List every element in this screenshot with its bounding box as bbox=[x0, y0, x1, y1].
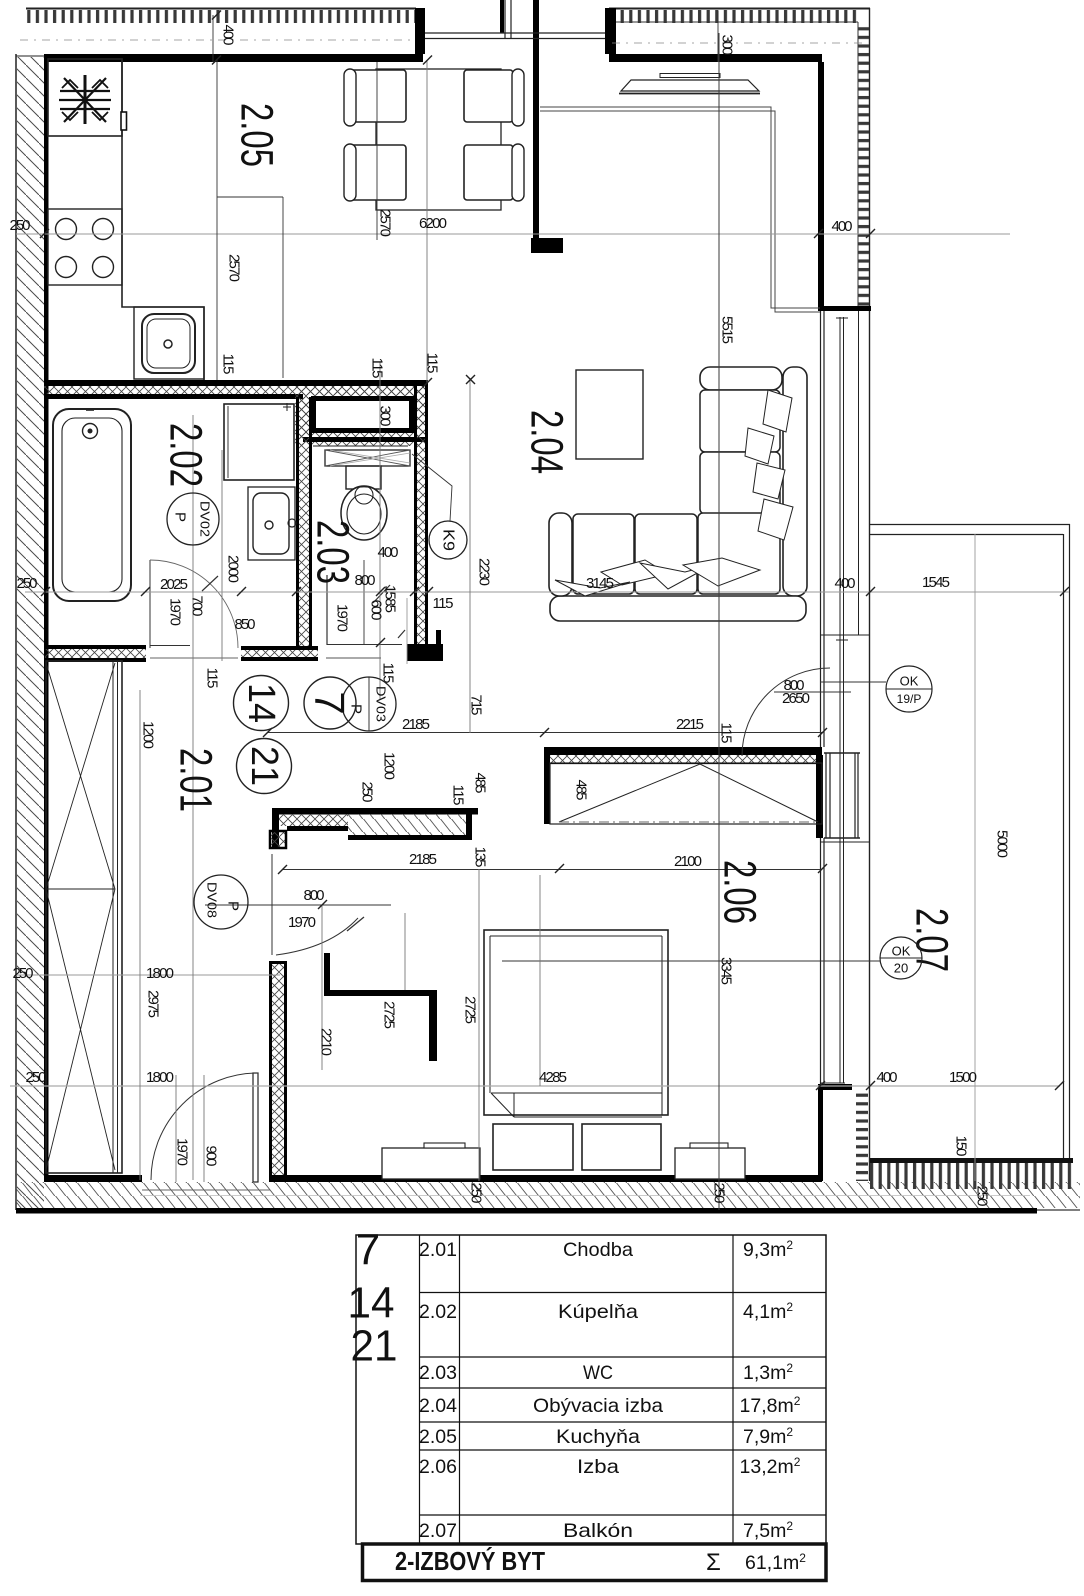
svg-text:115: 115 bbox=[220, 354, 237, 375]
svg-text:OK: OK bbox=[900, 674, 919, 689]
svg-text:21: 21 bbox=[351, 1322, 398, 1371]
svg-text:485: 485 bbox=[573, 780, 590, 801]
svg-text:2725: 2725 bbox=[462, 996, 479, 1024]
svg-text:4285: 4285 bbox=[539, 1069, 567, 1086]
svg-text:2.02: 2.02 bbox=[161, 423, 212, 487]
svg-text:4,1m2: 4,1m2 bbox=[743, 1300, 793, 1323]
svg-text:2-IZBOVÝ BYT: 2-IZBOVÝ BYT bbox=[395, 1546, 545, 1576]
svg-text:1970: 1970 bbox=[288, 914, 316, 931]
svg-text:2185: 2185 bbox=[409, 851, 437, 868]
svg-text:115: 115 bbox=[450, 785, 467, 806]
svg-text:13,2m2: 13,2m2 bbox=[740, 1455, 801, 1478]
svg-text:WC: WC bbox=[583, 1362, 613, 1384]
svg-text:2025: 2025 bbox=[160, 576, 188, 593]
svg-text:2570: 2570 bbox=[226, 254, 243, 282]
svg-text:2.04: 2.04 bbox=[522, 410, 573, 474]
svg-text:2230: 2230 bbox=[476, 558, 493, 586]
svg-text:1800: 1800 bbox=[146, 1069, 174, 1086]
svg-text:Kuchyňa: Kuchyňa bbox=[556, 1426, 640, 1448]
svg-text:3145: 3145 bbox=[586, 575, 614, 592]
svg-text:2.04: 2.04 bbox=[419, 1395, 457, 1417]
svg-text:1970: 1970 bbox=[167, 598, 184, 626]
svg-text:Obývacia izba: Obývacia izba bbox=[533, 1395, 663, 1417]
svg-text:2100: 2100 bbox=[674, 853, 702, 870]
svg-text:400: 400 bbox=[877, 1069, 898, 1086]
svg-text:OK: OK bbox=[892, 944, 911, 959]
svg-text:P: P bbox=[225, 901, 242, 911]
svg-text:7: 7 bbox=[356, 1226, 380, 1275]
svg-text:2.01: 2.01 bbox=[419, 1239, 457, 1261]
svg-text:250: 250 bbox=[974, 1186, 991, 1207]
svg-text:250: 250 bbox=[10, 217, 31, 234]
svg-text:1200: 1200 bbox=[381, 752, 398, 780]
svg-text:800: 800 bbox=[355, 572, 376, 589]
svg-text:2000: 2000 bbox=[225, 555, 242, 583]
svg-text:7,9m2: 7,9m2 bbox=[743, 1425, 793, 1448]
svg-text:P: P bbox=[172, 512, 189, 522]
svg-text:5515: 5515 bbox=[719, 316, 736, 344]
svg-text:115: 115 bbox=[424, 353, 441, 374]
svg-text:61,1m2: 61,1m2 bbox=[745, 1551, 806, 1574]
svg-text:600: 600 bbox=[368, 600, 385, 621]
svg-text:3345: 3345 bbox=[718, 957, 735, 985]
svg-text:250: 250 bbox=[17, 575, 38, 592]
svg-text:800: 800 bbox=[304, 887, 325, 904]
svg-text:1970: 1970 bbox=[334, 604, 351, 632]
svg-text:2.03: 2.03 bbox=[419, 1362, 457, 1384]
svg-text:2.06: 2.06 bbox=[715, 860, 766, 924]
svg-text:2210: 2210 bbox=[318, 1028, 335, 1056]
svg-text:1500: 1500 bbox=[949, 1069, 977, 1086]
svg-text:K9: K9 bbox=[440, 529, 457, 551]
svg-text:400: 400 bbox=[835, 575, 856, 592]
svg-text:7: 7 bbox=[307, 691, 354, 714]
svg-text:850: 850 bbox=[235, 616, 256, 633]
svg-text:2185: 2185 bbox=[402, 716, 430, 733]
svg-text:9,3m2: 9,3m2 bbox=[743, 1238, 793, 1261]
svg-text:Balkón: Balkón bbox=[563, 1520, 633, 1542]
svg-text:5000: 5000 bbox=[994, 830, 1011, 858]
svg-text:900: 900 bbox=[203, 1146, 220, 1167]
svg-text:DV02: DV02 bbox=[198, 501, 213, 537]
svg-text:Kúpelňa: Kúpelňa bbox=[558, 1301, 638, 1323]
svg-text:485: 485 bbox=[472, 773, 489, 794]
svg-text:1800: 1800 bbox=[146, 965, 174, 982]
svg-text:250: 250 bbox=[359, 782, 376, 803]
svg-text:250: 250 bbox=[711, 1183, 728, 1204]
svg-text:150: 150 bbox=[953, 1136, 970, 1157]
svg-text:DV08: DV08 bbox=[205, 882, 220, 918]
svg-text:2.03: 2.03 bbox=[308, 520, 359, 584]
svg-text:300: 300 bbox=[719, 35, 736, 56]
svg-text:2.01: 2.01 bbox=[171, 748, 222, 812]
svg-text:250: 250 bbox=[13, 965, 34, 982]
svg-text:20: 20 bbox=[894, 961, 908, 976]
svg-text:2650: 2650 bbox=[782, 690, 810, 707]
svg-text:2.06: 2.06 bbox=[419, 1456, 457, 1478]
svg-text:Izba: Izba bbox=[577, 1456, 619, 1478]
svg-text:1200: 1200 bbox=[140, 721, 157, 749]
svg-text:Σ: Σ bbox=[706, 1549, 721, 1576]
svg-text:7,5m2: 7,5m2 bbox=[743, 1519, 793, 1542]
svg-text:400: 400 bbox=[378, 544, 399, 561]
svg-text:2.05: 2.05 bbox=[232, 103, 283, 167]
svg-text:2215: 2215 bbox=[676, 716, 704, 733]
svg-text:2975: 2975 bbox=[145, 990, 162, 1018]
svg-text:715: 715 bbox=[468, 695, 485, 716]
svg-text:115: 115 bbox=[204, 668, 221, 689]
svg-text:300: 300 bbox=[377, 406, 394, 427]
svg-text:Chodba: Chodba bbox=[563, 1239, 633, 1261]
svg-text:14: 14 bbox=[348, 1279, 395, 1328]
svg-text:700: 700 bbox=[189, 596, 206, 617]
svg-text:2.07: 2.07 bbox=[907, 908, 958, 972]
svg-text:1545: 1545 bbox=[922, 574, 950, 591]
svg-text:2725: 2725 bbox=[381, 1001, 398, 1029]
svg-text:DV03: DV03 bbox=[374, 686, 389, 722]
svg-text:115: 115 bbox=[718, 723, 735, 744]
svg-text:21: 21 bbox=[243, 746, 285, 786]
svg-text:115: 115 bbox=[433, 595, 454, 612]
svg-text:2.07: 2.07 bbox=[419, 1520, 457, 1542]
svg-text:115: 115 bbox=[369, 358, 386, 379]
svg-text:19/P: 19/P bbox=[897, 692, 922, 706]
svg-text:1,3m2: 1,3m2 bbox=[743, 1361, 793, 1384]
svg-text:250: 250 bbox=[468, 1183, 485, 1204]
svg-text:400: 400 bbox=[220, 25, 237, 46]
svg-text:1970: 1970 bbox=[174, 1138, 191, 1166]
svg-text:135: 135 bbox=[472, 847, 489, 868]
svg-text:17,8m2: 17,8m2 bbox=[740, 1394, 801, 1417]
svg-text:2.02: 2.02 bbox=[419, 1301, 457, 1323]
svg-text:14: 14 bbox=[240, 683, 282, 723]
svg-text:250: 250 bbox=[26, 1069, 47, 1086]
svg-text:2570: 2570 bbox=[377, 209, 394, 237]
svg-text:400: 400 bbox=[832, 218, 853, 235]
svg-text:6200: 6200 bbox=[419, 215, 447, 232]
svg-text:2.05: 2.05 bbox=[419, 1426, 457, 1448]
